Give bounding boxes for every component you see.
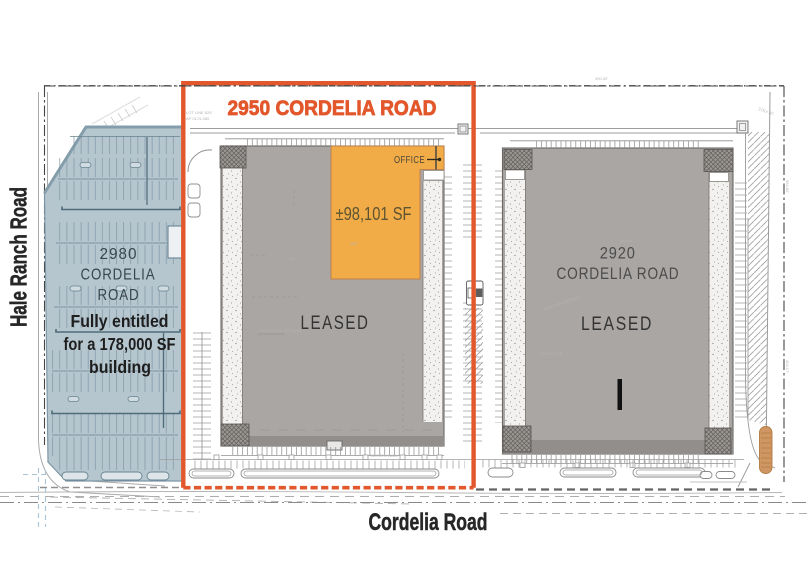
svg-text:2950 CORDELIA ROAD: 2950 CORDELIA ROAD [228, 96, 437, 120]
svg-text:Hale Ranch Road: Hale Ranch Road [6, 187, 32, 327]
svg-text:SCREEN WALL: SCREEN WALL [370, 453, 399, 458]
svg-text:LEASED: LEASED [581, 314, 653, 335]
svg-text:for a 178,000 SF: for a 178,000 SF [64, 334, 176, 354]
svg-text:300.00': 300.00' [595, 76, 608, 81]
svg-text:±90': ±90' [350, 241, 358, 246]
svg-text:LANDSCAPE SETBACK: LANDSCAPE SETBACK [258, 328, 302, 333]
svg-text:LOT LINE 625': LOT LINE 625' [186, 110, 212, 115]
svg-text:OFFICE: OFFICE [394, 154, 425, 166]
svg-text:CORDELIA: CORDELIA [81, 267, 156, 284]
svg-text:AP 0174-080: AP 0174-080 [186, 116, 210, 121]
svg-text:S49°12'24"E: S49°12'24"E [540, 351, 563, 356]
svg-text:Fully entitled: Fully entitled [71, 311, 169, 331]
svg-text:404.17': 404.17' [785, 360, 790, 373]
svg-text:±98,101 SF: ±98,101 SF [336, 204, 412, 224]
svg-text:±32': ±32' [288, 256, 296, 261]
svg-text:Cordelia Road: Cordelia Road [369, 509, 488, 536]
svg-text:584.82': 584.82' [785, 180, 790, 193]
svg-text:building: building [89, 357, 151, 377]
svg-text:ROAD: ROAD [98, 287, 140, 304]
svg-text:2980: 2980 [100, 246, 138, 263]
svg-text:CORDELIA ROAD: CORDELIA ROAD [557, 265, 680, 283]
svg-text:2920: 2920 [600, 245, 636, 263]
svg-text:448.45': 448.45' [620, 238, 633, 243]
svg-text:LEASED: LEASED [301, 313, 370, 334]
